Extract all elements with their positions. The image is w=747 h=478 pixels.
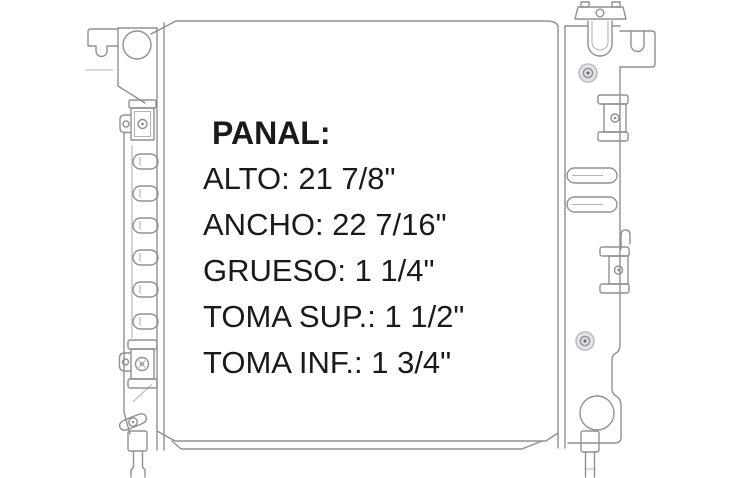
left-channel-slots: [133, 154, 158, 329]
radiator-cap: [575, 2, 626, 19]
spec-line-alto: ALTO: 21 7/8": [203, 156, 464, 202]
spec-text-block: PANAL: ALTO: 21 7/8" ANCHO: 22 7/16" GRU…: [203, 110, 464, 386]
right-lower-mount-bracket: [600, 247, 629, 293]
radiator-spec-sheet: PANAL: ALTO: 21 7/8" ANCHO: 22 7/16" GRU…: [0, 0, 747, 478]
right-upper-mount-bracket: [598, 95, 628, 141]
spec-line-toma-inf: TOMA INF.: 1 3/4": [203, 340, 464, 386]
left-lower-mount-bracket: [120, 340, 158, 388]
spec-line-grueso: GRUESO: 1 1/4": [203, 248, 464, 294]
drain-tube: [131, 451, 145, 477]
right-tank-outline: [565, 26, 621, 443]
left-side-channel: [118, 28, 157, 434]
drain-petcock: [118, 412, 148, 432]
right-channel-slots: [567, 168, 617, 212]
filler-neck: [588, 21, 612, 56]
outlet-tube: [584, 452, 596, 477]
left-upper-mount-bracket: [120, 100, 156, 140]
spec-line-ancho: ANCHO: 22 7/16": [203, 202, 464, 248]
upper-inlet-port: [123, 31, 151, 59]
right-hook-tab: [621, 230, 630, 249]
top-left-mount-tab: [85, 29, 117, 70]
weld-bolt-upper: [578, 63, 598, 83]
spec-heading: PANAL:: [203, 110, 464, 156]
spec-line-toma-sup: TOMA SUP.: 1 1/2": [203, 294, 464, 340]
top-right-mount-tab: [620, 31, 655, 67]
lower-outlet-port: [580, 396, 614, 430]
weld-bolt-lower: [575, 331, 595, 351]
drain-fitting: [128, 431, 147, 451]
outlet-fitting: [581, 431, 599, 452]
